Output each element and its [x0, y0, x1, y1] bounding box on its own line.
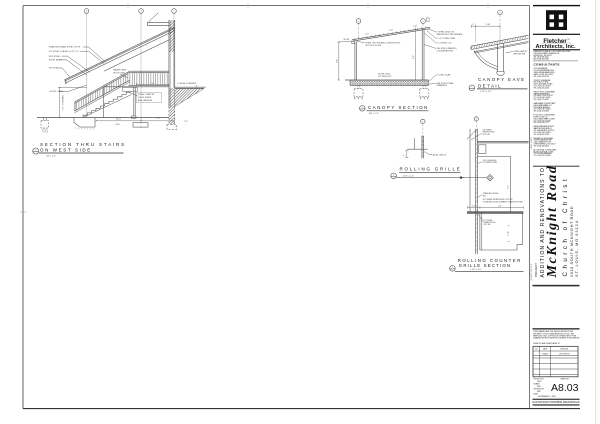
svg-text:CHECKED BY:: CHECKED BY:	[534, 388, 545, 390]
svg-text:ST. LOUIS, MO 63105: ST. LOUIS, MO 63105	[534, 155, 551, 157]
svg-text:TEL (314) 469-1711: TEL (314) 469-1711	[534, 122, 549, 124]
svg-text:CONSTRUCTION/BID DRAWINGS: CONSTRUCTION/BID DRAWINGS	[532, 400, 580, 404]
svg-text:SOLID RISER: SOLID RISER	[138, 97, 152, 99]
svg-text:REVISION: REVISION	[560, 349, 568, 351]
svg-text:2'-0": 2'-0"	[184, 121, 188, 123]
svg-text:8: 8	[140, 11, 141, 13]
svg-text:3/8" = 1'-0": 3/8" = 1'-0"	[369, 113, 379, 115]
svg-text:TEL (314) 434-5700: TEL (314) 434-5700	[534, 76, 549, 78]
svg-text:6" ALUM. FLASHING: 6" ALUM. FLASHING	[178, 82, 197, 85]
svg-text:AND LANDING: AND LANDING	[138, 99, 153, 102]
svg-text:TEL (314) 469-6842: TEL (314) 469-6842	[534, 145, 549, 147]
svg-text:2" x 12" STEEL TUBE: 2" x 12" STEEL TUBE	[437, 38, 456, 40]
svg-text:NOVEMBER 1, 1999: NOVEMBER 1, 1999	[538, 396, 556, 398]
svg-text:2: 2	[362, 107, 363, 109]
svg-text:SILL: SILL	[483, 195, 487, 197]
svg-text:TEL (314) 423-8585: TEL (314) 423-8585	[534, 111, 549, 113]
svg-text:(1:85/08" DWG PLT): (1:85/08" DWG PLT)	[531, 263, 533, 280]
svg-text:1 1/2" = 1'-0": 1 1/2" = 1'-0"	[480, 91, 492, 93]
svg-text:CONSULTANTS: CONSULTANTS	[534, 63, 560, 67]
svg-text:5: 5	[471, 87, 472, 89]
svg-text:ON WEST SIDE: ON WEST SIDE	[40, 148, 92, 153]
svg-text:97059: 97059	[537, 381, 542, 383]
svg-text:2'-0": 2'-0"	[157, 117, 161, 119]
svg-text:STANDING SEAM STEEL ROOF: STANDING SEAM STEEL ROOF	[49, 46, 81, 49]
svg-text:ST. LOUIS, MO 63124: ST. LOUIS, MO 63124	[574, 220, 579, 277]
svg-text:AT ROOF SLOPE: AT ROOF SLOPE	[366, 44, 382, 47]
svg-text:6: 6	[476, 119, 477, 121]
svg-text:1'-10": 1'-10"	[485, 24, 490, 26]
svg-text:1 1/2" = 1'-0": 1 1/2" = 1'-0"	[403, 176, 415, 178]
svg-text:SRB: SRB	[537, 386, 540, 388]
svg-text:TEL (314) 862-1234: TEL (314) 862-1234	[534, 134, 549, 136]
svg-text:6: 6	[86, 11, 87, 13]
svg-text:GYP. BD.: GYP. BD.	[483, 224, 491, 226]
svg-text:PROJECT NO:: PROJECT NO:	[534, 378, 545, 380]
svg-text:PAINTED BOTTOM SURFACE: PAINTED BOTTOM SURFACE	[437, 33, 464, 36]
svg-text:STEEL STAIR W/: STEEL STAIR W/	[138, 93, 155, 96]
svg-text:SECTION THRU STAIRS: SECTION THRU STAIRS	[40, 142, 126, 147]
svg-text:DRAWINGS: DRAWINGS	[437, 84, 448, 87]
svg-text:SHEET NO:: SHEET NO:	[561, 378, 570, 380]
svg-text:ON METAL STUDS (CEMENT PLASTER: ON METAL STUDS (CEMENT PLASTER FLUSH)	[483, 200, 523, 203]
svg-text:CANOPY EAVE: CANOPY EAVE	[478, 77, 526, 82]
svg-text:8'-0": 8'-0"	[413, 55, 415, 59]
svg-text:CANOPY SECTION: CANOPY SECTION	[368, 105, 429, 110]
svg-text:3: 3	[393, 175, 394, 177]
svg-text:COLUMN BEYOND: COLUMN BEYOND	[437, 50, 454, 52]
svg-text:7'-6" = 11 RISERS: 7'-6" = 11 RISERS	[63, 95, 65, 111]
svg-text:APPLIED FIN.: APPLIED FIN.	[514, 53, 527, 56]
svg-text:GRILLE SECTION: GRILLE SECTION	[459, 263, 511, 268]
svg-text:SLOPE: SLOPE	[344, 39, 351, 41]
svg-text:1: 1	[173, 11, 174, 13]
svg-text:ROLLING GRILLE: ROLLING GRILLE	[400, 167, 462, 172]
svg-text:W12 STEEL: W12 STEEL	[49, 56, 62, 58]
svg-text:ALUM. GRILLE: ALUM. GRILLE	[433, 154, 447, 157]
svg-text:9'-4": 9'-4"	[336, 59, 338, 63]
svg-text:STEEL BEAM: STEEL BEAM	[49, 59, 63, 62]
svg-text:TEL (314) 725-0445: TEL (314) 725-0445	[534, 99, 549, 101]
svg-text:6 x 4 STEEL COL.: 6 x 4 STEEL COL.	[437, 43, 453, 45]
svg-text:10'-0": 10'-0"	[116, 119, 121, 121]
svg-text:PROJECT:: PROJECT:	[534, 262, 538, 277]
svg-text:8: 8	[422, 121, 423, 123]
svg-text:2x2 STEEL TUBING @ 24" O.C.: 2x2 STEEL TUBING @ 24" O.C.	[49, 51, 80, 53]
svg-text:TEL (314) 426-4100: TEL (314) 426-4100	[534, 87, 549, 89]
svg-text:Church of Christ: Church of Christ	[562, 176, 569, 277]
svg-text:DESCRIPTION: DESCRIPTION	[559, 353, 569, 355]
svg-text:COUNTER GRILL: COUNTER GRILL	[483, 162, 498, 164]
svg-text:7'-2": 7'-2"	[507, 185, 509, 189]
svg-text:2'-0": 2'-0"	[498, 206, 502, 208]
svg-text:ISSUE NO. AND ISSUE DATES TO: ISSUE NO. AND ISSUE DATES TO	[533, 342, 560, 345]
svg-text:GYP. BD.: GYP. BD.	[483, 134, 491, 136]
svg-text:McKnight Road: McKnight Road	[545, 165, 560, 279]
svg-text:1/4" = 1'-0": 1/4" = 1'-0"	[46, 155, 56, 157]
svg-text:DRAWING WITHOUT WRITTEN CONSEN: DRAWING WITHOUT WRITTEN CONSENT IS PROHI…	[533, 337, 580, 340]
svg-text:2'-6": 2'-6"	[151, 83, 155, 85]
svg-text:FAX (314) 966-3988: FAX (314) 966-3988	[534, 58, 549, 61]
svg-text:4" CONC. SLAB: 4" CONC. SLAB	[437, 74, 451, 77]
svg-text:1'-4": 1'-4"	[472, 206, 476, 208]
svg-text:RAISED RAIL: RAISED RAIL	[113, 68, 127, 71]
svg-text:A8.03-2.DWG: A8.03-2.DWG	[530, 137, 533, 149]
svg-text:4: 4	[35, 150, 36, 152]
svg-text:A8.03: A8.03	[551, 382, 579, 394]
svg-text:Architects, Inc.: Architects, Inc.	[535, 44, 576, 50]
svg-text:WRF: WRF	[537, 391, 541, 393]
svg-text:GUTTER: GUTTER	[49, 68, 58, 70]
svg-text:1/4" PER FOOT: 1/4" PER FOOT	[378, 76, 392, 78]
svg-text:DETAIL: DETAIL	[478, 83, 502, 88]
svg-text:1: 1	[452, 267, 453, 269]
svg-text:2'-10": 2'-10"	[508, 231, 510, 236]
svg-text:1 1/2" = 1'-0": 1 1/2" = 1'-0"	[470, 269, 482, 271]
